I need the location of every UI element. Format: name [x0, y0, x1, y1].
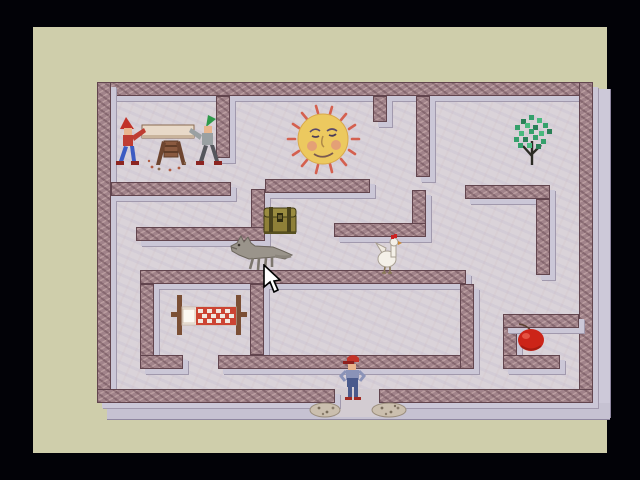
crt-black-border [0, 0, 640, 480]
boy[interactable] [339, 354, 367, 402]
maze-wall-center-long [140, 270, 466, 284]
boy-icon [339, 354, 367, 402]
wolf[interactable] [229, 233, 293, 273]
mouse-cursor-icon [262, 264, 282, 293]
rubble-icon [371, 398, 407, 418]
chicken-icon [374, 233, 402, 275]
maze-wall-apple-bottom [503, 355, 560, 369]
sun[interactable] [284, 99, 362, 177]
tree[interactable] [509, 113, 555, 167]
gnomes-sawing[interactable] [112, 111, 226, 175]
maze-wall-outer-bottom-left [97, 389, 335, 403]
maze [33, 27, 607, 453]
maze-wall-bed-room-bottom [140, 355, 183, 369]
treasure-chest[interactable] [262, 203, 298, 236]
tree-icon [509, 113, 555, 167]
maze-wall-outer-bottom-right [379, 389, 593, 403]
wolf-icon [229, 233, 293, 273]
maze-wall-center-top-vertical [416, 96, 430, 177]
sun-icon [284, 99, 362, 177]
maze-wall-center-low-vertical [460, 284, 474, 369]
rubble-left [309, 399, 341, 418]
rubble-right [371, 398, 407, 418]
apple[interactable] [515, 323, 547, 352]
maze-wall-tree-room-bottom [465, 185, 550, 199]
game-screen [33, 27, 607, 453]
rubble-icon [309, 399, 341, 418]
maze-wall-tree-room-right [536, 199, 550, 275]
maze-wall-top-stub [373, 96, 387, 122]
maze-wall-outer-left [97, 82, 111, 403]
apple-icon [515, 323, 547, 352]
treasure-chest-icon [262, 203, 298, 236]
bed[interactable] [169, 293, 249, 337]
maze-wall-sun-room-bottom [265, 179, 370, 193]
maze-wall-outer-right [579, 82, 593, 403]
maze-side-face-right [593, 89, 611, 418]
mouse-cursor [262, 264, 282, 293]
maze-wall-outer-top [97, 82, 593, 96]
gnomes-sawing-icon [112, 111, 226, 175]
maze-wall-gnome-room-bottom [111, 182, 231, 196]
chicken[interactable] [374, 233, 402, 275]
bed-icon [169, 293, 249, 337]
maze-wall-bed-room-right [250, 284, 264, 355]
